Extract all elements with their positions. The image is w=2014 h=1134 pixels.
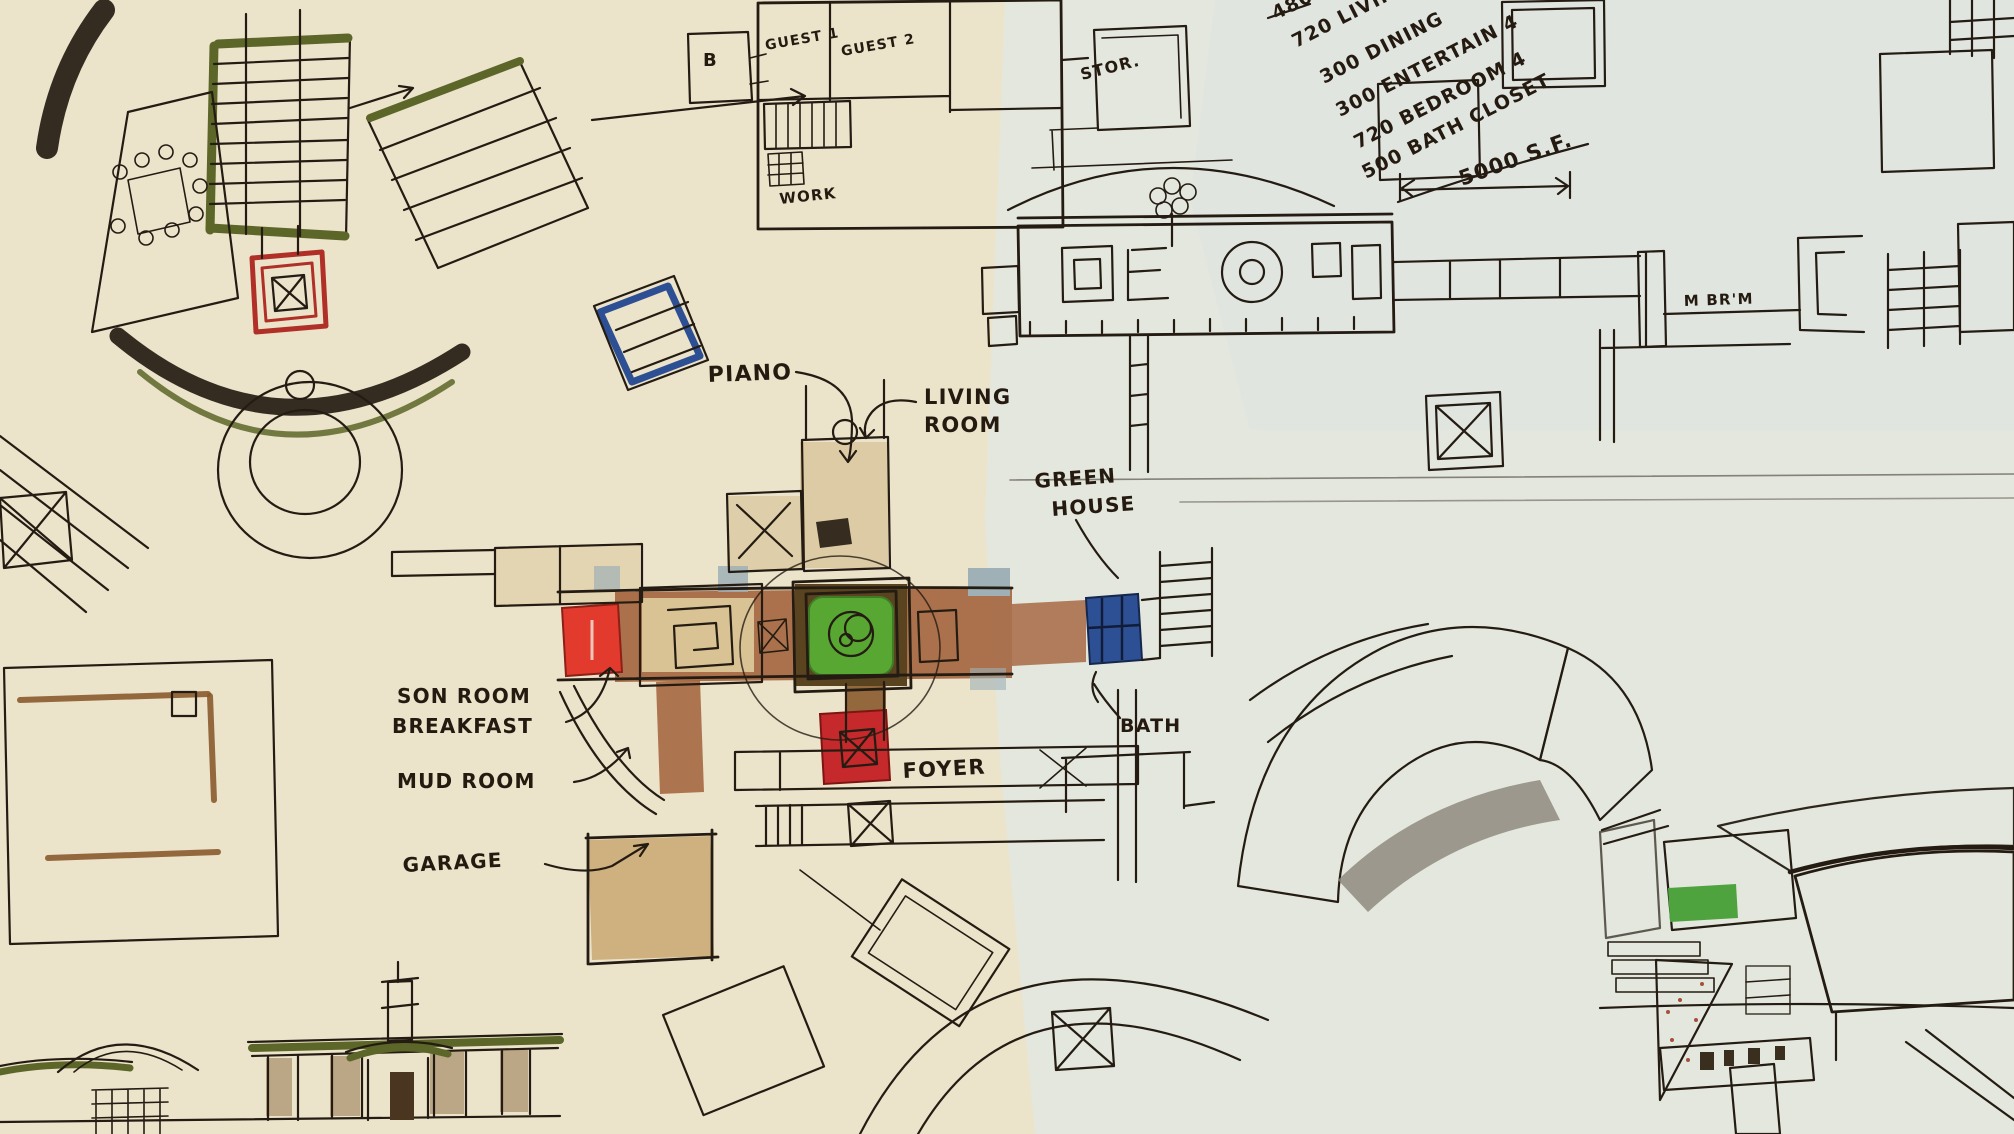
label-living-room-line1: LIVING [924, 385, 1011, 409]
label-bath: BATH [1120, 715, 1181, 737]
label-living-room-line2: ROOM [924, 413, 1002, 437]
label-piano: PIANO [707, 360, 792, 388]
architect-sketch-sheet: 480 MU 720 LIVING 300 DINING 300 ENTERTA… [0, 0, 2014, 1134]
label-breakfast: BREAKFAST [392, 714, 533, 738]
label-b: B [703, 50, 718, 71]
label-son-room: SON ROOM [397, 684, 531, 708]
label-master-bedroom: M BR'M [1684, 290, 1754, 310]
sketch-drawing: 480 MU 720 LIVING 300 DINING 300 ENTERTA… [0, 0, 2014, 1134]
label-mud-room: MUD ROOM [397, 769, 536, 793]
label-foyer: FOYER [902, 755, 986, 783]
